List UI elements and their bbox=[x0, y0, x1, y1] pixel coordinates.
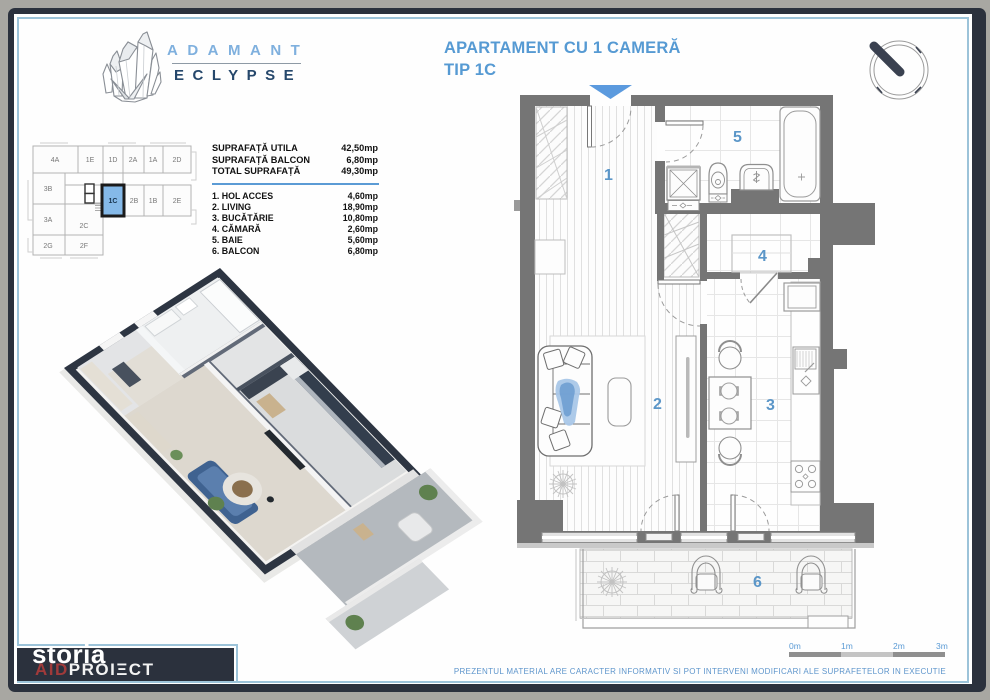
svg-text:2C: 2C bbox=[80, 223, 89, 230]
svg-text:2F: 2F bbox=[80, 243, 88, 250]
svg-text:3A: 3A bbox=[44, 217, 53, 224]
svg-text:1: 1 bbox=[604, 167, 613, 184]
svg-text:1E: 1E bbox=[86, 157, 95, 164]
svg-text:3: 3 bbox=[766, 397, 775, 414]
svg-text:2A: 2A bbox=[129, 157, 138, 164]
svg-text:2E: 2E bbox=[173, 198, 182, 205]
svg-text:2B: 2B bbox=[130, 198, 139, 205]
svg-text:3B: 3B bbox=[44, 186, 53, 193]
svg-text:4: 4 bbox=[758, 248, 767, 265]
svg-text:2: 2 bbox=[653, 396, 662, 413]
svg-text:2G: 2G bbox=[43, 243, 52, 250]
svg-text:2D: 2D bbox=[173, 157, 182, 164]
svg-text:1A: 1A bbox=[149, 157, 158, 164]
svg-text:6: 6 bbox=[753, 574, 762, 591]
svg-text:1B: 1B bbox=[149, 198, 158, 205]
svg-text:4A: 4A bbox=[51, 157, 60, 164]
svg-text:5: 5 bbox=[733, 129, 742, 146]
svg-text:1D: 1D bbox=[109, 157, 118, 164]
svg-text:1C: 1C bbox=[109, 198, 118, 205]
